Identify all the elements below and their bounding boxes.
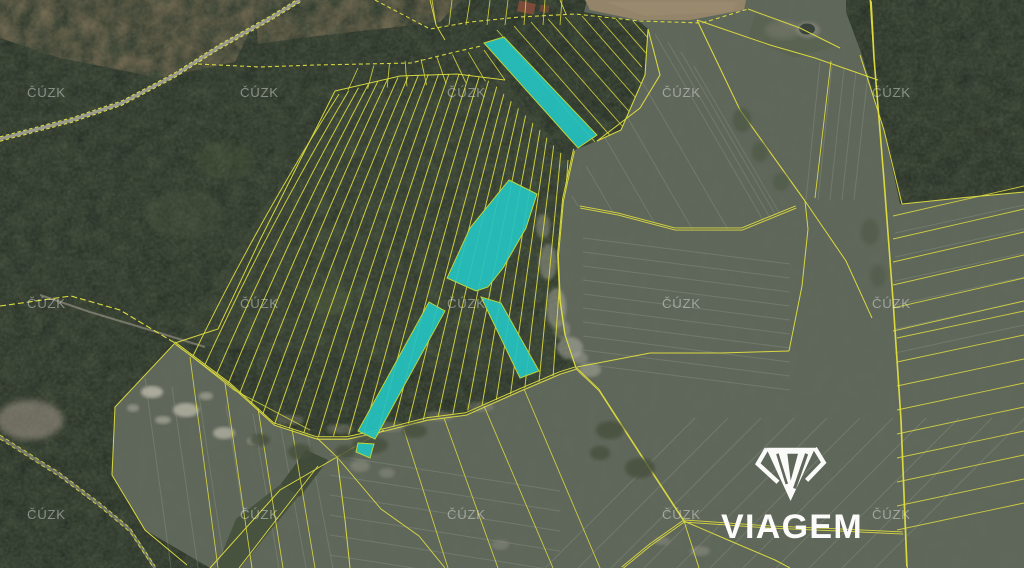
- svg-text:ČÚZK: ČÚZK: [447, 85, 486, 100]
- svg-text:ČÚZK: ČÚZK: [662, 296, 701, 311]
- svg-text:ČÚZK: ČÚZK: [240, 507, 279, 522]
- svg-text:ČÚZK: ČÚZK: [872, 507, 911, 522]
- svg-text:ČÚZK: ČÚZK: [27, 507, 66, 522]
- svg-text:ČÚZK: ČÚZK: [27, 296, 66, 311]
- svg-text:ČÚZK: ČÚZK: [240, 85, 279, 100]
- svg-text:ČÚZK: ČÚZK: [872, 85, 911, 100]
- svg-text:ČÚZK: ČÚZK: [27, 85, 66, 100]
- svg-text:VIAGEM: VIAGEM: [721, 508, 863, 546]
- svg-text:ČÚZK: ČÚZK: [240, 296, 279, 311]
- svg-text:ČÚZK: ČÚZK: [662, 85, 701, 100]
- svg-text:ČÚZK: ČÚZK: [447, 507, 486, 522]
- svg-text:ČÚZK: ČÚZK: [447, 296, 486, 311]
- svg-text:ČÚZK: ČÚZK: [872, 296, 911, 311]
- svg-text:ČÚZK: ČÚZK: [662, 507, 701, 522]
